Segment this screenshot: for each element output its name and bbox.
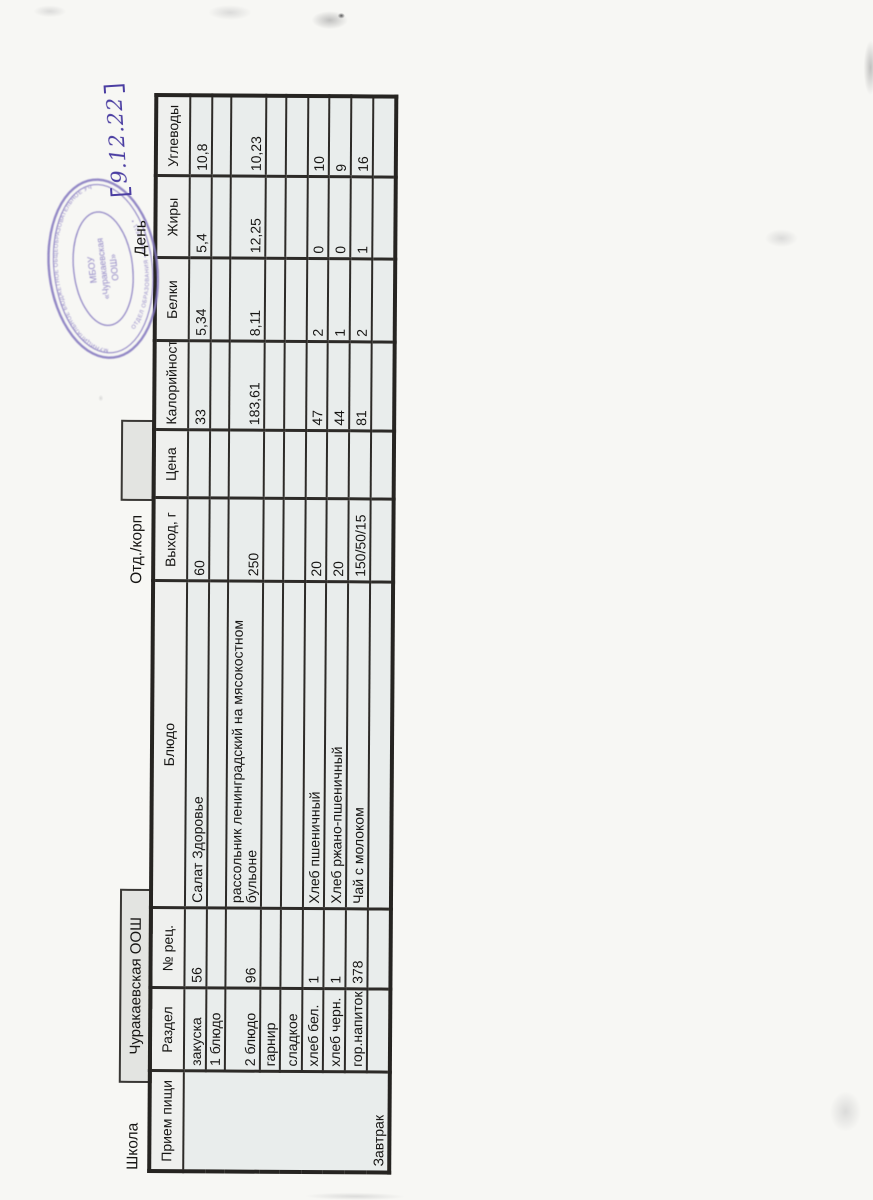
cell-output [209, 498, 228, 581]
cell-output [263, 499, 284, 582]
cell-recipe-no [280, 909, 303, 989]
scan-smudge [860, 29, 873, 107]
cell-calories: 33 [188, 341, 211, 430]
cell-price [370, 431, 393, 499]
header-cell-recipe-no: № рец. [150, 908, 185, 988]
cell-price [228, 431, 263, 499]
cell-output: 150/50/15 [348, 499, 371, 582]
cell-output: 20 [326, 499, 349, 582]
school-name: Чуракаевская ООШ [127, 917, 145, 1055]
dept-value-box [121, 420, 155, 501]
cell-carbs: 10,8 [190, 95, 213, 176]
pen-bracket-icon [103, 84, 124, 93]
cell-protein: 2 [349, 259, 372, 342]
cell-carbs [372, 96, 396, 177]
cell-recipe-no: 1 [323, 909, 346, 989]
cell-carbs: 9 [328, 96, 351, 177]
menu-table: Прием пищи Раздел № рец. Блюдо Выход, г … [147, 93, 398, 1175]
cell-carbs [265, 96, 286, 177]
cell-price [348, 431, 370, 499]
cell-dish: Хлеб ржано-пшеничный [324, 582, 348, 909]
cell-protein: 5,34 [189, 258, 212, 341]
scanned-page: Школа Чуракаевская ООШ Отд./корп День 9.… [0, 0, 873, 1200]
cell-fat: 1 [350, 177, 373, 259]
pen-bracket-icon [110, 187, 131, 196]
cell-protein [211, 258, 230, 341]
scan-smudge [28, 3, 72, 19]
cell-price [263, 431, 283, 499]
cell-section: 2 блюдо [225, 988, 261, 1071]
cell-section: хлеб бел. [302, 989, 324, 1072]
cell-protein [371, 259, 395, 342]
cell-recipe-no [206, 908, 225, 988]
cell-fat: 5,4 [189, 176, 212, 258]
cell-dish [261, 582, 283, 909]
cell-carbs: 10 [307, 96, 329, 177]
cell-dish: Чай с молоком [346, 582, 370, 909]
cell-price [283, 431, 305, 499]
cell-fat: 0 [328, 177, 351, 259]
scan-smudge [304, 7, 356, 33]
cell-recipe-no: 96 [225, 908, 261, 988]
cell-protein: 8,11 [229, 259, 265, 342]
cell-carbs [285, 96, 308, 177]
cell-fat: 0 [307, 177, 329, 259]
cell-fat [372, 177, 396, 259]
cell-calories [210, 341, 229, 430]
cell-recipe-no: 56 [184, 908, 207, 988]
header-cell-dish: Блюдо [151, 581, 187, 908]
header-cell-meal: Прием пищи [149, 1071, 184, 1171]
header-cell-output: Выход, г [153, 498, 188, 581]
cell-output: 60 [187, 498, 210, 581]
scan-speck [97, 394, 104, 403]
cell-calories [284, 342, 307, 431]
cell-section: закуска [184, 988, 207, 1071]
cell-protein [264, 259, 285, 342]
cell-price [326, 431, 348, 499]
handwritten-date-text: 9.12.22 [102, 96, 131, 184]
header-cell-carbs: Углеводы [156, 95, 191, 176]
cell-section: гор.напиток [345, 989, 368, 1072]
document-sheet: Школа Чуракаевская ООШ Отд./корп День 9.… [0, 0, 873, 1200]
cell-price [188, 430, 210, 498]
day-label: День [132, 220, 150, 256]
cell-dish: рассольник ленинградский на мясокостном … [226, 581, 263, 908]
cell-output: 20 [305, 499, 327, 582]
cell-calories [264, 342, 285, 431]
cell-section: хлеб черн. [323, 989, 346, 1072]
cell-dish: Хлеб пшеничный [303, 582, 326, 909]
cell-fat: 12,25 [230, 177, 266, 259]
cell-calories [371, 342, 395, 431]
cell-protein: 2 [306, 259, 328, 342]
scan-smudge [288, 1191, 422, 1200]
cell-fat [265, 177, 286, 259]
cell-calories: 81 [349, 342, 372, 431]
scan-smudge [824, 1084, 866, 1138]
official-stamp: МУНИЦИПАЛЬНОЕ БЮДЖЕТНОЕ ОБЩЕОБРАЗОВАТЕЛЬ… [35, 167, 170, 371]
cell-dish [368, 582, 393, 909]
cell-dish: Салат Здоровье [185, 581, 209, 908]
school-label: Школа [124, 1123, 142, 1170]
header-cell-section: Раздел [150, 988, 185, 1071]
scan-smudge [201, 2, 259, 22]
cell-protein: 1 [327, 259, 350, 342]
cell-calories: 183,61 [229, 342, 265, 431]
cell-protein [284, 259, 307, 342]
meal-value-cell: Завтрак [183, 1071, 389, 1172]
cell-fat [211, 176, 230, 258]
scan-speck [337, 12, 346, 19]
cell-output [283, 499, 306, 582]
cell-section: 1 блюдо [206, 988, 225, 1071]
cell-price [210, 430, 229, 498]
cell-recipe-no: 1 [302, 909, 324, 989]
header-cell-price: Цена [154, 430, 188, 498]
cell-carbs: 16 [350, 96, 373, 177]
stamp-center-line3: ООШ» [107, 253, 120, 281]
cell-output [370, 499, 394, 582]
cell-carbs: 10,23 [230, 96, 266, 177]
cell-section: сладкое [280, 989, 303, 1072]
cell-price [305, 431, 326, 499]
scan-smudge [759, 226, 803, 250]
cell-recipe-no [260, 909, 281, 989]
cell-dish [207, 581, 228, 908]
cell-recipe-no: 378 [345, 909, 368, 989]
cell-calories: 47 [306, 342, 328, 431]
cell-section [367, 989, 391, 1072]
cell-recipe-no [367, 909, 391, 989]
cell-section: гарнир [260, 989, 281, 1072]
cell-calories: 44 [327, 342, 350, 431]
cell-fat [285, 177, 308, 259]
dept-label: Отд./корп [128, 515, 146, 584]
cell-dish [281, 582, 305, 909]
header-cell-fat: Жиры [155, 176, 190, 258]
cell-carbs [212, 95, 231, 176]
cell-output: 250 [228, 498, 264, 581]
